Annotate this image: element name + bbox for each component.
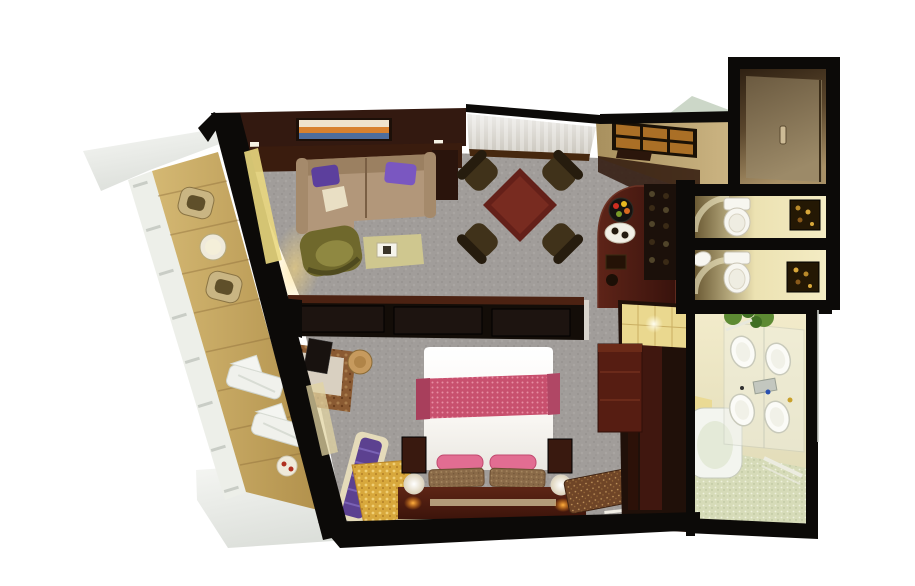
bolster-left [437,455,483,470]
nightstand-right [548,439,572,473]
bath-right-wall [806,304,818,536]
room-divider-cabinet [288,295,589,340]
balcony-table-top [205,239,221,255]
drink-1 [282,462,287,467]
floor-plan-svg [0,0,915,586]
hall-top-wall [731,57,840,69]
divider-panels [300,306,570,336]
wc-upper-toilet [724,198,750,236]
wc-upper-artwork [790,200,820,230]
balcony-side-table [277,456,297,476]
bed-runner [416,374,560,419]
wc-upper [695,196,828,238]
wardrobe-shadow [628,420,638,510]
toiletry-blue [766,390,771,395]
bed [416,347,560,488]
wc-top-wall [683,184,840,196]
wardrobe-interior [640,330,662,510]
sofa-armrest-left [296,158,308,234]
bar-tray [606,255,626,269]
platform-glow-left [404,496,422,510]
toiletry-dark [740,386,744,390]
desk-stool-top [354,356,366,368]
drink-2 [289,467,294,472]
divider-end-cap [584,300,589,340]
fruit-plate [609,198,633,222]
tv-panel [303,338,332,374]
nightstand-left [402,437,426,473]
tray-item [383,246,391,254]
wc-mid-wall [686,238,840,250]
hall-left-wall [728,57,740,196]
pillow-left [429,468,485,488]
wc-lower-artwork [787,262,819,292]
toiletry-amber [788,398,793,403]
entry-hall [740,69,828,188]
bolster-right [490,455,536,470]
vanity-spotlight [645,315,663,333]
right-wall-upper [826,57,840,310]
wc-lower [691,249,828,300]
wc-lower-toilet [724,252,750,293]
headboard-slat [430,499,556,506]
entry-door-handle [780,126,786,144]
bar-item [606,274,618,286]
sofa-armrest-right [424,152,436,218]
bed-runner-fold-right [547,373,560,415]
dresser [598,344,642,432]
bar-kitchenette [598,184,676,312]
bedside-lamp-left [404,474,424,494]
purple-pillow-right [384,161,417,185]
bathroom [688,304,806,524]
dresser-top [598,344,642,352]
purple-pillow-left [311,164,341,188]
coffee-plate [605,223,635,243]
ottoman-group [363,234,424,269]
wall-painting [296,118,392,141]
pillow-right [490,468,546,488]
minibar-shelf [644,184,676,280]
bath-left-wall [686,304,695,536]
floor-plan-canvas [0,0,915,586]
bed-runner-fold-left [416,378,430,420]
